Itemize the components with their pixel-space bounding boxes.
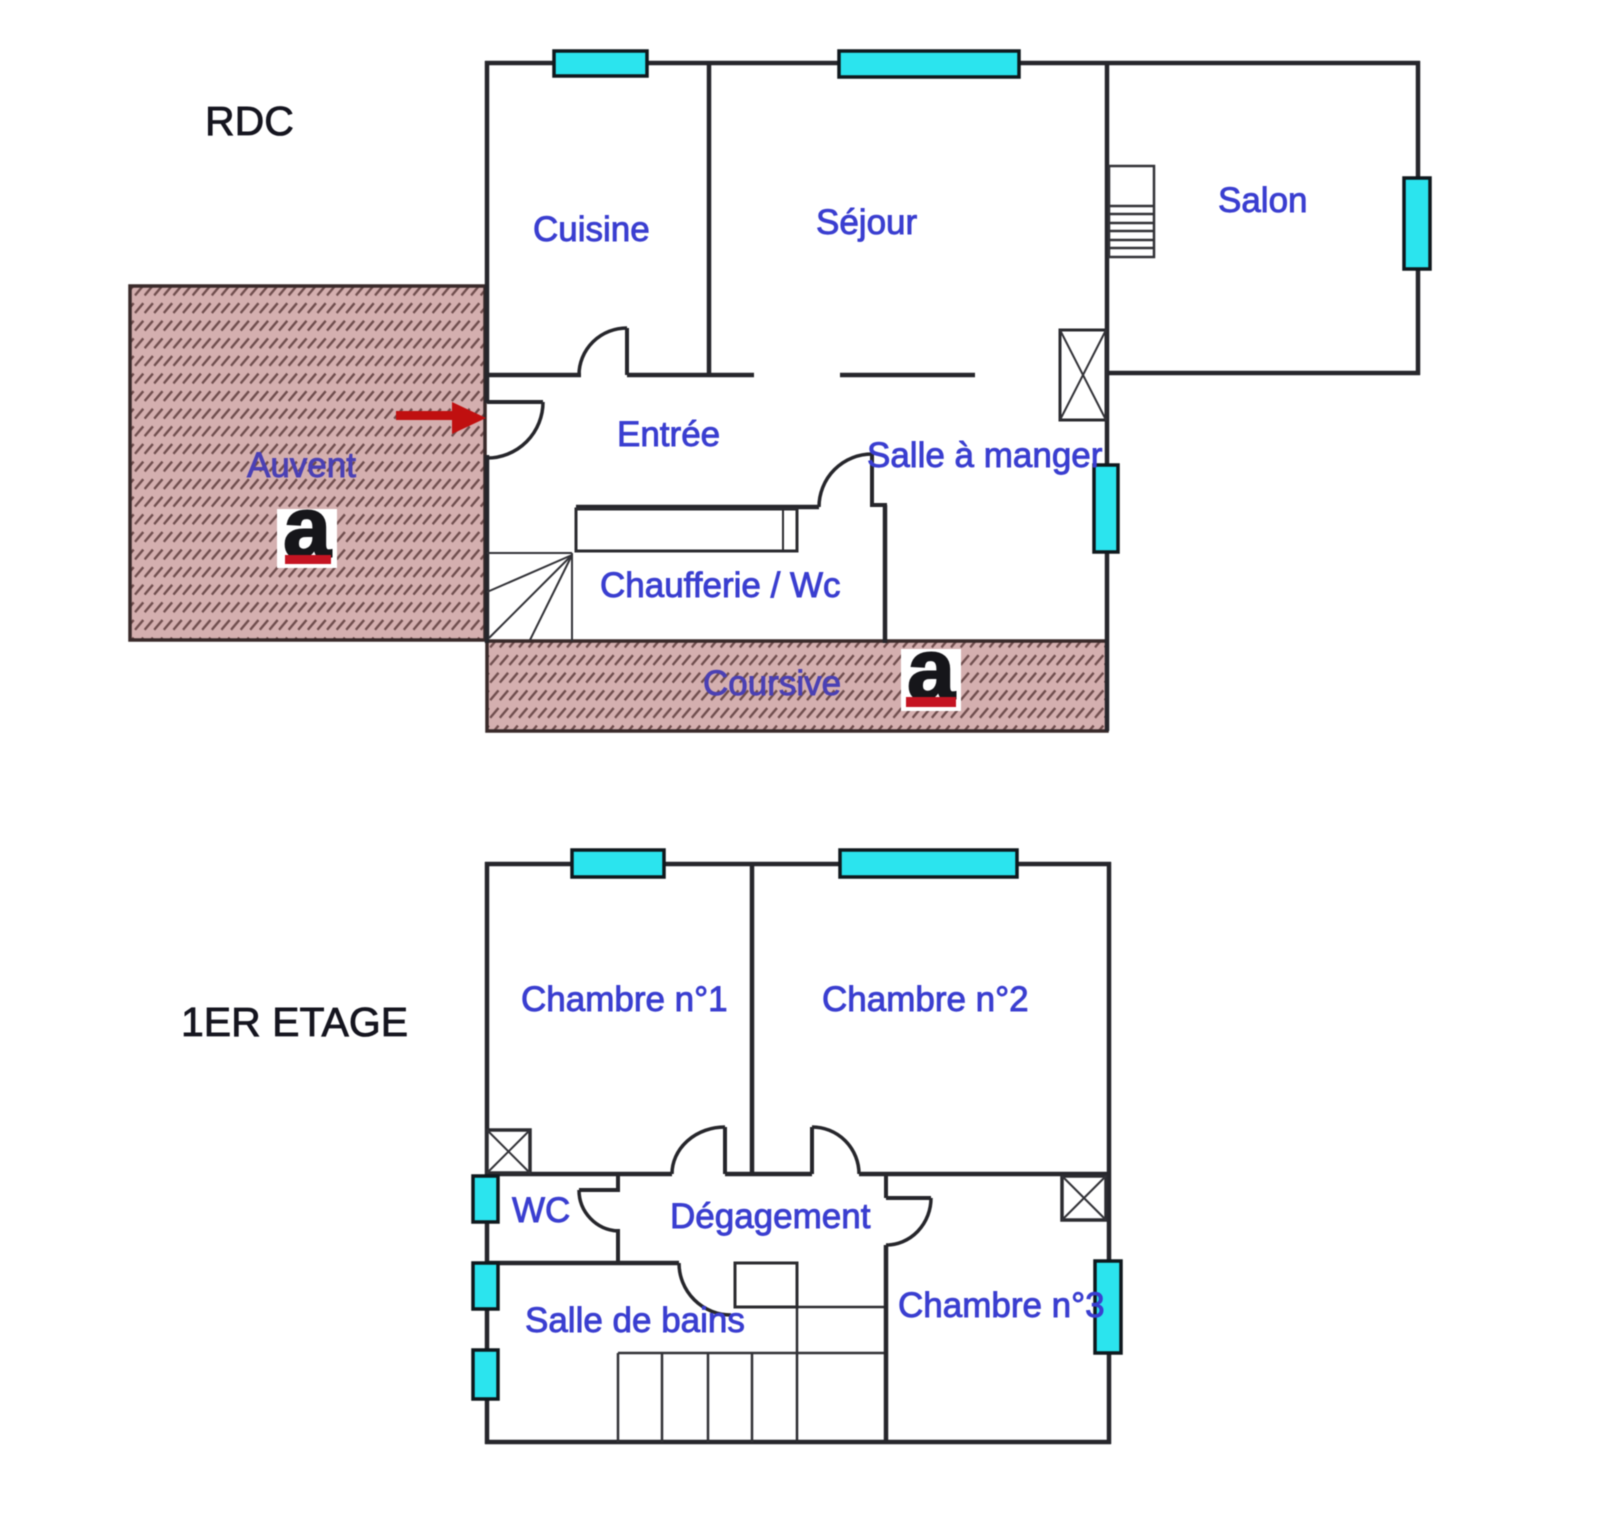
svg-text:Coursive: Coursive xyxy=(703,664,841,703)
svg-text:RDC: RDC xyxy=(205,98,294,144)
svg-text:Salle à manger: Salle à manger xyxy=(867,436,1103,475)
svg-text:1ER ETAGE: 1ER ETAGE xyxy=(181,999,408,1045)
svg-text:Dégagement: Dégagement xyxy=(670,1197,871,1236)
svg-text:WC: WC xyxy=(512,1191,570,1230)
svg-text:Cuisine: Cuisine xyxy=(533,210,650,249)
svg-text:Chaufferie / Wc: Chaufferie / Wc xyxy=(600,566,841,605)
svg-text:Salon: Salon xyxy=(1218,181,1308,220)
svg-text:Salle de bains: Salle de bains xyxy=(525,1301,745,1340)
svg-text:Séjour: Séjour xyxy=(816,203,918,242)
svg-text:Chambre n°3: Chambre n°3 xyxy=(898,1286,1105,1325)
svg-text:Chambre n°1: Chambre n°1 xyxy=(521,980,728,1019)
svg-text:Entrée: Entrée xyxy=(617,415,720,454)
svg-text:Chambre n°2: Chambre n°2 xyxy=(822,980,1029,1019)
